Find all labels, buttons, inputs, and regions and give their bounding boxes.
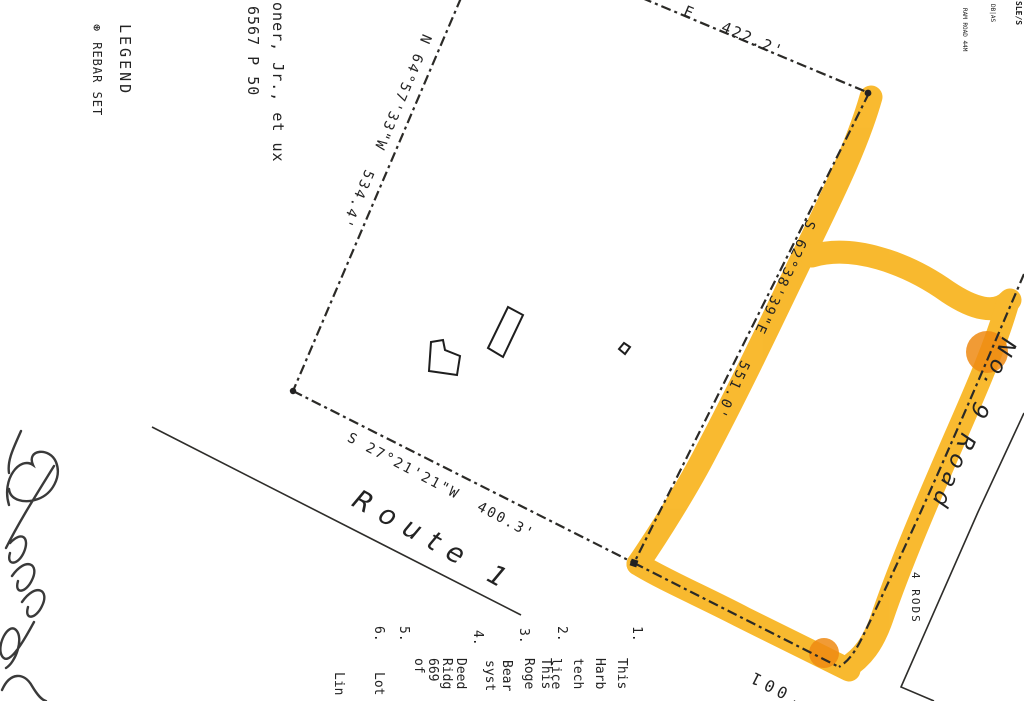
adjoiner-name-fragment: ooner, Jr., et ux bbox=[269, 0, 287, 163]
highlight-branch bbox=[812, 252, 1010, 308]
west-boundary-line bbox=[293, 0, 461, 391]
rebar-set-icon: ⊛ bbox=[90, 24, 104, 32]
survey-plat-scan: LEGEND ⊛REBAR SET ooner, Jr., et ux 6567… bbox=[0, 0, 1024, 701]
buildings bbox=[429, 307, 630, 375]
plat-linework bbox=[0, 0, 1024, 701]
note-number: 5. bbox=[396, 626, 411, 642]
building-small-shed bbox=[619, 343, 630, 354]
rebar-corner-northeast bbox=[865, 90, 872, 97]
south-route1-boundary-line bbox=[293, 391, 634, 563]
note-number: 6. bbox=[371, 626, 386, 642]
stamp-fragment: RAM ROAD 44M bbox=[961, 8, 968, 51]
note-number: 1. bbox=[629, 626, 644, 642]
note-number: 4. bbox=[470, 630, 485, 646]
note-text: Lin bbox=[296, 672, 381, 701]
note-number: 2. bbox=[554, 626, 569, 642]
adjoiner-deed-reference: 6567 P 50 bbox=[244, 6, 262, 96]
building-l-shaped bbox=[429, 340, 460, 375]
route1-southwest-edge bbox=[152, 427, 521, 615]
note-number: 3. bbox=[516, 628, 531, 644]
legend-title: LEGEND bbox=[116, 24, 134, 96]
building-rectangular bbox=[488, 307, 523, 357]
legend-rebar-label: REBAR SET bbox=[90, 42, 104, 116]
no9-road-width-note: 4 RODS bbox=[909, 572, 922, 624]
legend-rebar-item: ⊛REBAR SET bbox=[90, 24, 104, 116]
stamp-fragment: SLE/S bbox=[1015, 1, 1022, 25]
stamp-fragment: DB|AS bbox=[989, 4, 996, 22]
signature bbox=[0, 431, 57, 701]
rebar-corner-west bbox=[290, 388, 296, 394]
